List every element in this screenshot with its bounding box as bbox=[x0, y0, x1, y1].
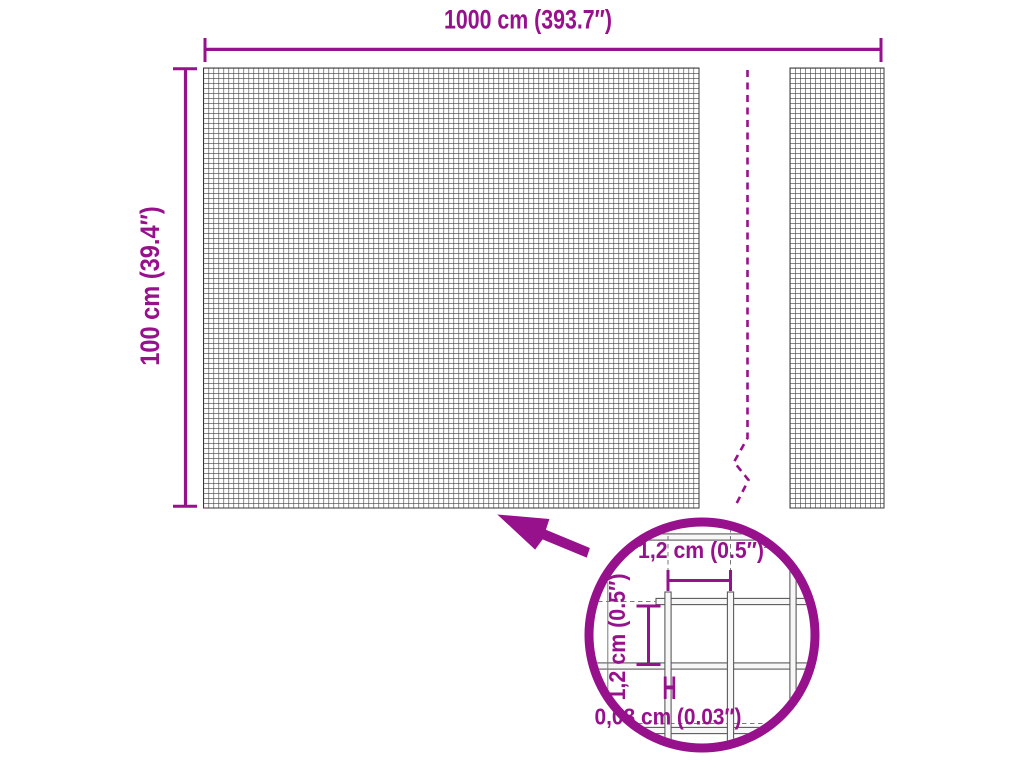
svg-text:1,2 cm (0.5″): 1,2 cm (0.5″) bbox=[604, 574, 630, 701]
svg-text:1000 cm (393.7″): 1000 cm (393.7″) bbox=[444, 5, 612, 35]
svg-text:100 cm (39.4″): 100 cm (39.4″) bbox=[135, 206, 165, 366]
svg-text:1,2 cm (0.5″): 1,2 cm (0.5″) bbox=[638, 537, 764, 563]
svg-text:H: H bbox=[663, 670, 677, 706]
